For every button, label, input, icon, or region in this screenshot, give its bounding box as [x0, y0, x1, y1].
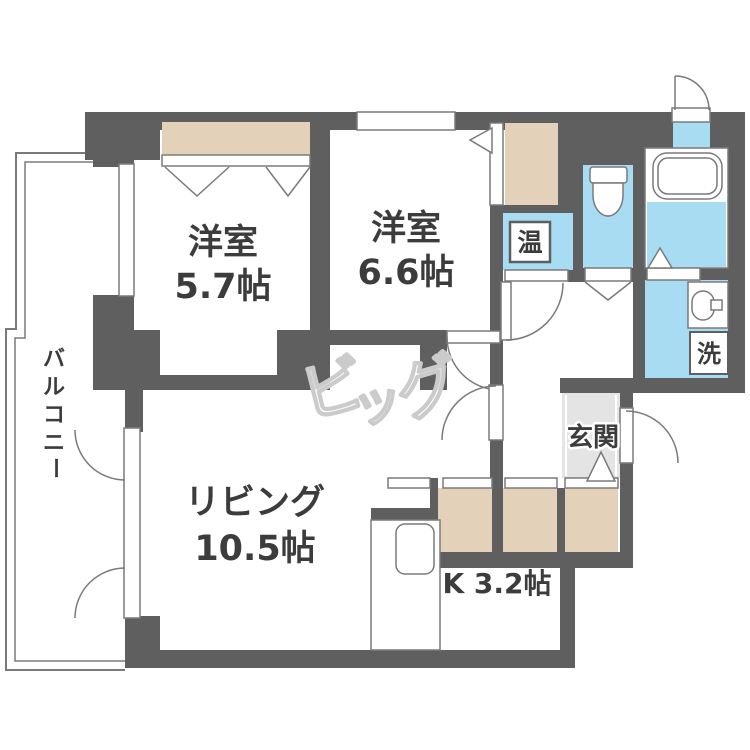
closet-bedroom2 [505, 123, 558, 205]
bedroom1-size: 5.7帖 [174, 267, 271, 307]
door-leaf-living [489, 385, 503, 440]
kitchen-label: K 3.2帖 [442, 567, 551, 600]
water-heater-label: 温 [517, 228, 542, 257]
door-arc-top-right [675, 76, 709, 110]
closet-bedroom1 [162, 122, 310, 155]
closet-fold-mark-2 [266, 167, 310, 196]
toilet-bowl [593, 183, 623, 216]
bath-entry-floor [673, 122, 710, 148]
bedroom2-label: 洋室 [371, 208, 441, 249]
door-leaf-bedroom2 [447, 331, 500, 343]
closet-hall-west [438, 488, 492, 552]
svg-text:ニ: ニ [43, 431, 65, 456]
closet-track-bedroom1 [162, 155, 310, 166]
door-arc-washroom [506, 283, 563, 340]
svg-text:バ: バ [43, 347, 65, 372]
closet-track-b [443, 478, 492, 488]
door-arc-balcony-upper [75, 430, 125, 480]
bathtub-inner [658, 158, 717, 194]
window-bedroom2 [357, 112, 455, 130]
threshold-water-heater [505, 270, 568, 281]
toilet-tank [590, 167, 627, 183]
balcony-door-unit [124, 428, 140, 618]
threshold-bath [647, 268, 700, 280]
door-leaf-top-right [672, 108, 710, 122]
laundry-label: 洗 [697, 340, 721, 368]
washbasin-faucet [711, 300, 722, 310]
kitchen-sink [396, 524, 434, 574]
bedroom1-label: 洋室 [188, 222, 258, 263]
floor-plan: ビ ッ グ 洋室 5.7帖 洋室 6.6帖 リビング 10.5帖 K 3.2帖 … [0, 0, 750, 750]
svg-text:ル: ル [43, 375, 65, 400]
door-arc-entrance [626, 411, 678, 463]
watermark: ビ ッ グ [293, 345, 469, 435]
bedroom2-size: 6.6帖 [357, 253, 454, 293]
closet-track-c [505, 478, 557, 488]
balcony-inner-line [15, 162, 125, 661]
genkan-label: 玄関 [567, 422, 619, 453]
balcony-outer-line [6, 153, 125, 670]
floor-plan-drawing: ビ ッ グ 洋室 5.7帖 洋室 6.6帖 リビング 10.5帖 K 3.2帖 … [0, 0, 750, 750]
door-leaf-entrance [620, 408, 633, 463]
balcony-label: バ ル コ ニ ー [42, 347, 67, 479]
living-size: 10.5帖 [194, 529, 315, 569]
threshold-toilet [585, 268, 631, 281]
closet-fold-mark-1 [165, 167, 229, 196]
closet-genkan [565, 488, 618, 552]
closet-door-mark-bedroom2 [470, 128, 492, 153]
door-arc-balcony-lower [75, 568, 125, 618]
balcony [6, 153, 125, 670]
window-bedroom1-balcony [119, 164, 134, 296]
living-label: リビング [185, 483, 325, 523]
svg-text:コ: コ [43, 403, 65, 428]
door-leaf-washroom [501, 282, 511, 340]
svg-text:ー: ー [42, 457, 67, 479]
closet-hall-middle [503, 488, 557, 552]
closet-track-a [388, 478, 430, 488]
toilet-door-mark [585, 282, 631, 300]
